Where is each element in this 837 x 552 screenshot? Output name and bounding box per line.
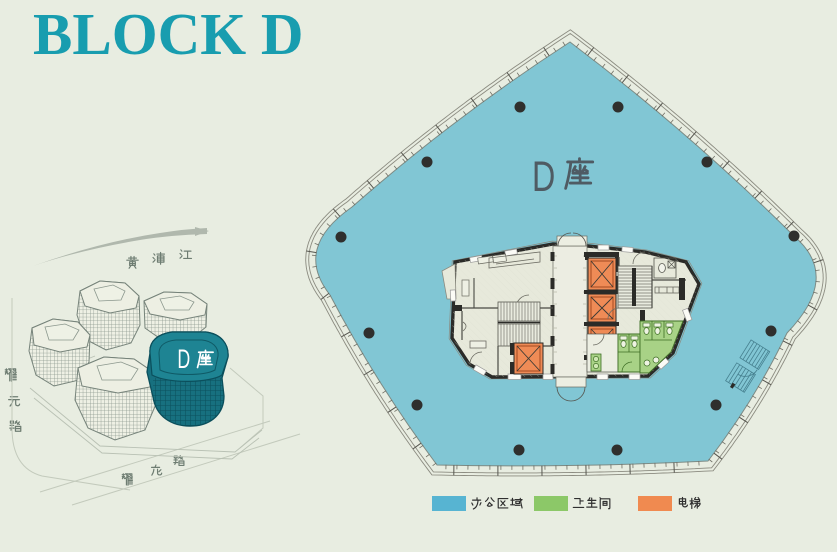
svg-text:D: D [177, 343, 190, 374]
svg-text:D: D [532, 154, 555, 202]
svg-text:BLOCK D: BLOCK D [33, 1, 303, 67]
